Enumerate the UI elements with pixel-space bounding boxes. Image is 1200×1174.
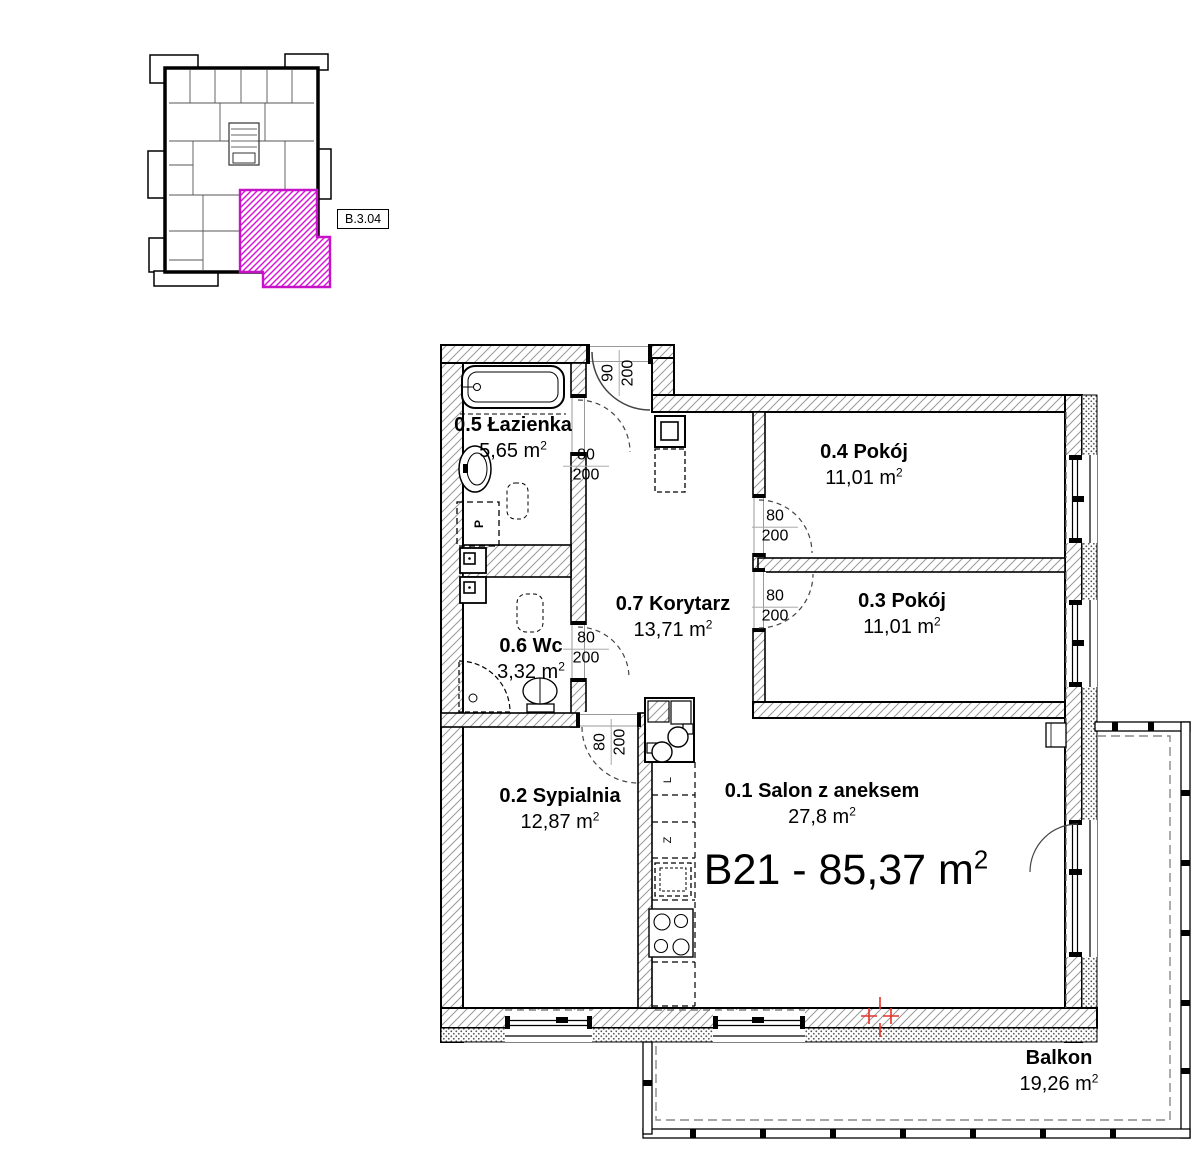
- room-area: 13,71 m2: [616, 617, 731, 643]
- apartment-title: B21 - 85,37 m2: [704, 846, 988, 895]
- room-name: 0.5 Łazienka: [454, 413, 572, 438]
- bedroom-window: [505, 1010, 592, 1042]
- room-name: 0.2 Sypialnia: [499, 784, 620, 809]
- entrance-shaft: [655, 416, 685, 447]
- washer-label: P: [472, 520, 486, 528]
- room-area: 5,65 m2: [454, 438, 572, 464]
- fridge-label: L: [662, 777, 674, 783]
- bathtub: [460, 366, 566, 414]
- kitchen-counter: [652, 762, 695, 1006]
- salon-radiator: [1046, 723, 1066, 747]
- room3-window: [1066, 600, 1097, 687]
- room-area: 19,26 m2: [1020, 1071, 1099, 1097]
- corridor-wardrobe: [655, 449, 685, 492]
- room-name: 0.1 Salon z aneksem: [725, 779, 920, 804]
- bathroom-cabinet: [507, 483, 528, 519]
- salon-window: [713, 1010, 805, 1042]
- room-label-salon: 0.1 Salon z aneksem 27,8 m2: [725, 779, 920, 830]
- apartment-plan: P: [0, 0, 1200, 1174]
- room-name: Balkon: [1020, 1046, 1099, 1071]
- door-dimension-room4: 80 200: [752, 509, 798, 546]
- room-label-wc: 0.6 Wc 3,32 m2: [497, 634, 565, 685]
- door-dimension-wc: 80 200: [563, 631, 609, 668]
- room-name: 0.3 Pokój: [858, 589, 946, 614]
- room-label-room3: 0.3 Pokój 11,01 m2: [858, 589, 946, 640]
- room-label-bedroom: 0.2 Sypialnia 12,87 m2: [499, 784, 620, 835]
- wc-cabinet: [517, 594, 543, 632]
- oven: [655, 863, 691, 896]
- room-label-room4: 0.4 Pokój 11,01 m2: [820, 440, 908, 491]
- door-dimension-room3: 80 200: [752, 589, 798, 626]
- door-dimension-bathroom: 80 200: [563, 448, 609, 485]
- floor-plan-page: B.3.04: [0, 0, 1200, 1174]
- cooktop: [649, 909, 693, 957]
- room-name: 0.7 Korytarz: [616, 592, 731, 617]
- room-label-balcony: Balkon 19,26 m2: [1020, 1046, 1099, 1097]
- room-area: 11,01 m2: [858, 614, 946, 640]
- dishwasher-label: Z: [662, 836, 674, 843]
- balcony-door-window: [1066, 820, 1097, 957]
- room-area: 3,32 m2: [497, 659, 565, 685]
- room-area: 12,87 m2: [499, 809, 620, 835]
- room-name: 0.6 Wc: [497, 634, 565, 659]
- room-label-bathroom: 0.5 Łazienka 5,65 m2: [454, 413, 572, 464]
- room-area: 11,01 m2: [820, 465, 908, 491]
- door-dimension-bedroom: 80 200: [593, 719, 630, 765]
- room-name: 0.4 Pokój: [820, 440, 908, 465]
- door-dimension-entrance: 90 200: [601, 350, 638, 396]
- room-area: 27,8 m2: [725, 804, 920, 830]
- kitchen-sink-unit: [645, 698, 694, 762]
- room4-window: [1066, 455, 1097, 543]
- room-label-corridor: 0.7 Korytarz 13,71 m2: [616, 592, 731, 643]
